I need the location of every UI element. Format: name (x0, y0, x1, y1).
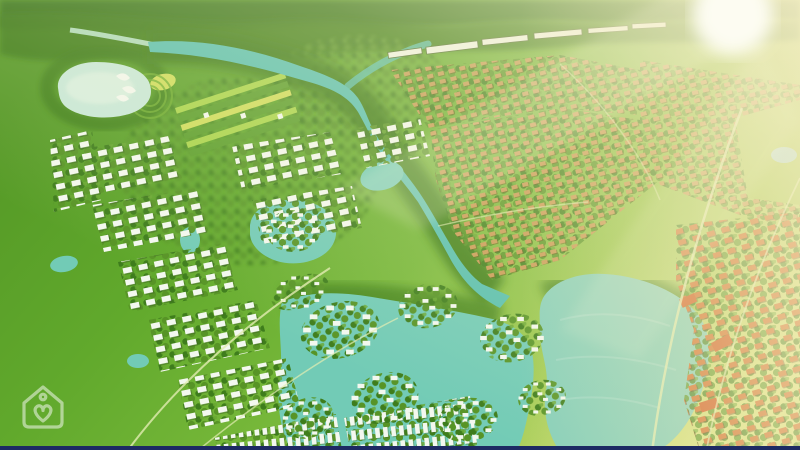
bottom-bar (0, 446, 800, 450)
aerial-masterplan-render (0, 0, 800, 450)
render-canvas (0, 0, 800, 450)
